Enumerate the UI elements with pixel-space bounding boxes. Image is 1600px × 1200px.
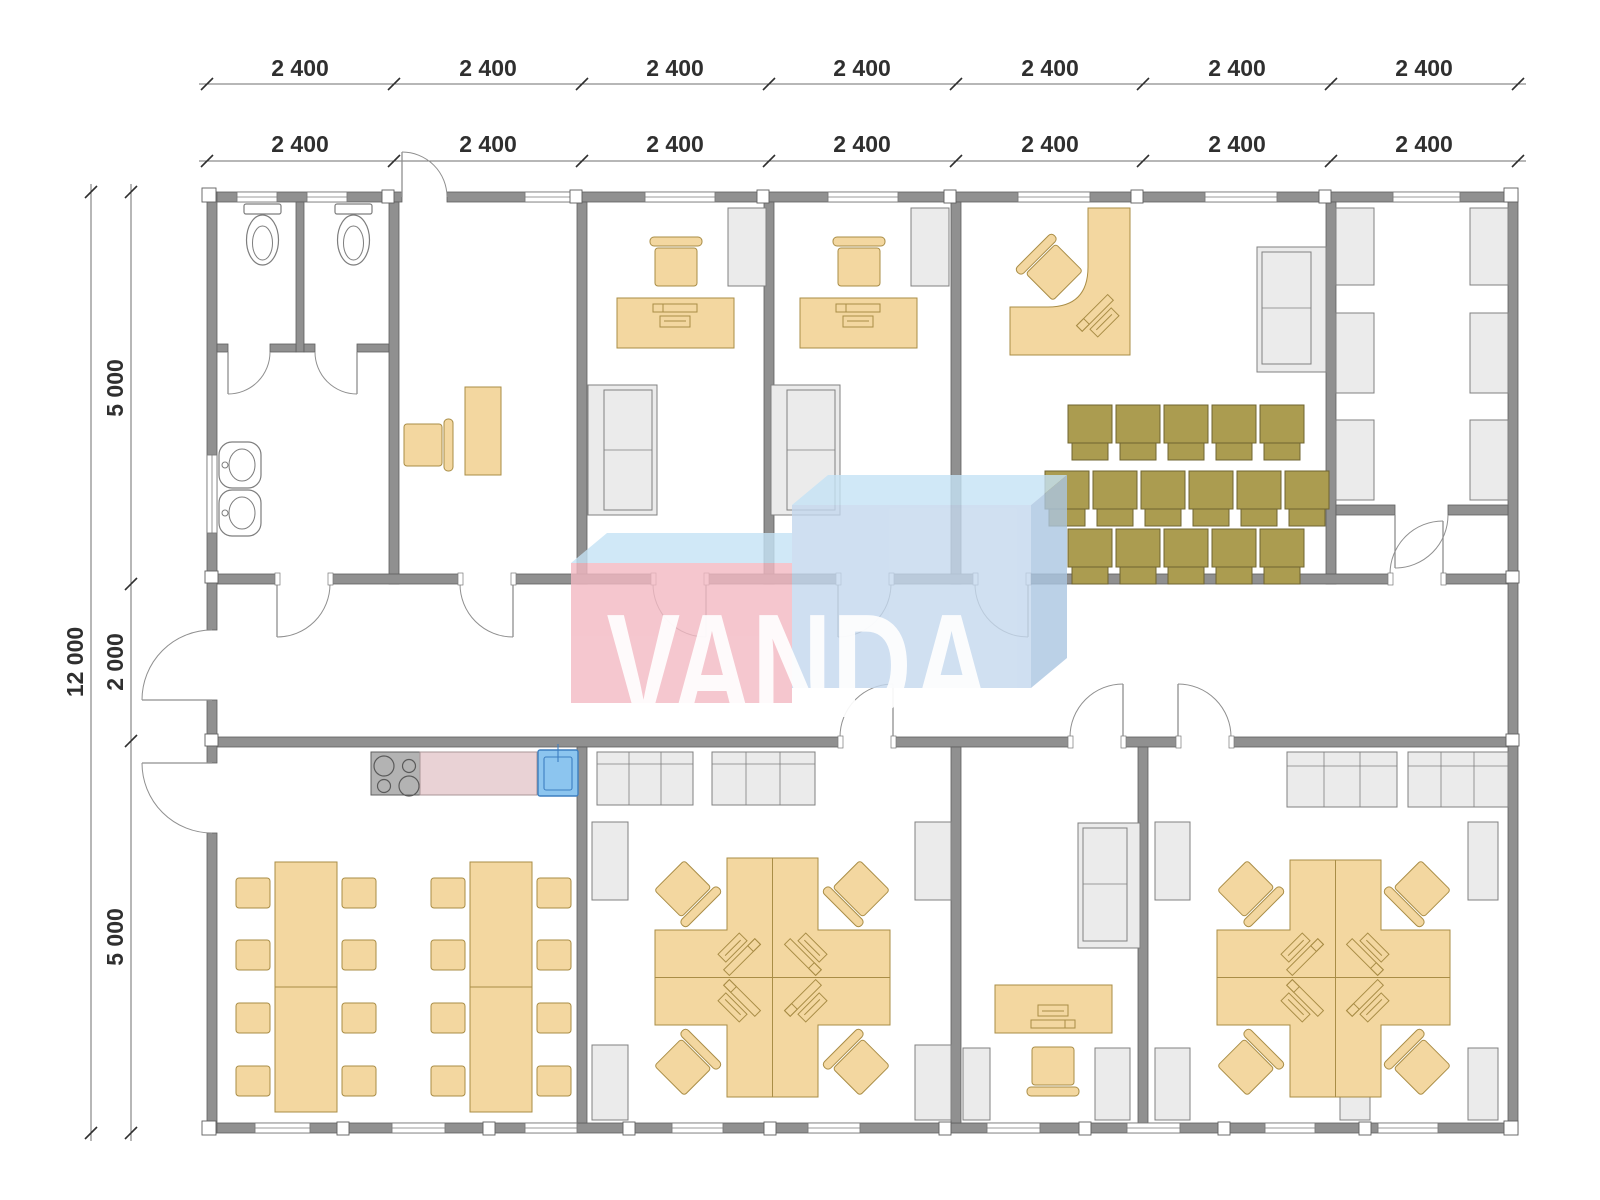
- door-icon: [228, 352, 270, 394]
- door-icon: [402, 152, 447, 197]
- cabinet-icon: [1468, 822, 1498, 900]
- cabinet-icon: [915, 822, 951, 900]
- dim-left-seg2: 2 000: [102, 633, 128, 691]
- window-icon: [307, 192, 347, 202]
- cabinet-icon: [592, 1045, 628, 1120]
- cabinet-icon: [1470, 420, 1508, 500]
- toilet-icon: [335, 204, 372, 265]
- toilet-icon: [244, 204, 281, 265]
- window-icon: [828, 192, 898, 202]
- office-chair-icon: [1214, 857, 1285, 928]
- room-office-2: [771, 208, 949, 515]
- office-chair-icon: [1383, 857, 1454, 928]
- door-icon: [1390, 521, 1443, 574]
- office-desk-icon: [465, 387, 501, 475]
- office-desk-icon: [800, 298, 917, 348]
- dim-left-total: 12 000: [62, 627, 88, 697]
- dim-top1-bay4: 2 400: [833, 55, 891, 81]
- door-icon: [460, 584, 513, 637]
- washbasin-icon: [219, 442, 261, 488]
- sofa-icon: [1078, 823, 1140, 948]
- office-chair-icon: [1383, 1028, 1454, 1099]
- cabinet-icon: [1468, 1048, 1498, 1120]
- sofa-icon: [1257, 247, 1326, 372]
- watermark-logo-text: VANDA: [607, 584, 992, 749]
- training-chairs-row-2: [1045, 471, 1329, 526]
- door-icon: [142, 763, 212, 833]
- office-desk-icon: [617, 298, 734, 348]
- dim-top2-bay7: 2 400: [1395, 131, 1453, 157]
- window-icon: [1393, 192, 1460, 202]
- window-icon: [237, 192, 277, 202]
- dim-top1-bay5: 2 400: [1021, 55, 1079, 81]
- window-icon: [255, 1123, 310, 1133]
- room-open-office-1: [592, 752, 951, 1120]
- door-icon: [277, 584, 330, 637]
- kitchen-sink-icon: [538, 744, 578, 796]
- office-desk-icon: [995, 985, 1112, 1033]
- floor-plan-drawing: 2 400 2 400 2 400 2 400 2 400 2 400 2 40…: [0, 0, 1600, 1200]
- window-icon: [1265, 1123, 1315, 1133]
- cabinet-icon: [1095, 1048, 1130, 1120]
- cabinet-icon: [1336, 313, 1374, 393]
- office-chair-icon: [404, 419, 453, 471]
- dim-top2-bay3: 2 400: [646, 131, 704, 157]
- room-canteen: [236, 744, 578, 1112]
- counter-icon: [1287, 752, 1397, 807]
- kitchen-counter-icon: [420, 752, 537, 795]
- counter-icon: [712, 752, 815, 805]
- window-icon: [1378, 1123, 1438, 1133]
- room-office-1: [588, 208, 766, 515]
- office-chair-icon: [822, 857, 893, 928]
- door-icon: [142, 630, 212, 700]
- cabinet-icon: [592, 822, 628, 900]
- watermark-side-face: [1031, 475, 1067, 688]
- window-icon: [808, 1123, 860, 1133]
- room-reception: [404, 387, 501, 475]
- counter-icon: [1408, 752, 1508, 807]
- office-chair-icon: [833, 237, 885, 286]
- room-manager-office: [963, 823, 1140, 1120]
- dim-top2-bay2: 2 400: [459, 131, 517, 157]
- window-icon: [987, 1123, 1040, 1133]
- dim-top2-bay1: 2 400: [271, 131, 329, 157]
- dim-top1-bay6: 2 400: [1208, 55, 1266, 81]
- window-icon: [1205, 192, 1277, 202]
- window-icon: [1127, 1123, 1180, 1133]
- cabinet-icon: [1155, 1048, 1190, 1120]
- dim-top1-bay1: 2 400: [271, 55, 329, 81]
- room-lockers: [1336, 208, 1508, 500]
- cabinet-icon: [1470, 208, 1508, 285]
- window-icon: [525, 192, 572, 202]
- window-icon: [392, 1123, 445, 1133]
- window-icon: [1018, 192, 1090, 202]
- dim-left-seg3: 5 000: [102, 908, 128, 966]
- dim-left-seg1: 5 000: [102, 359, 128, 417]
- window-icon: [525, 1123, 577, 1133]
- office-chair-icon: [651, 857, 722, 928]
- room-toilets: [219, 204, 372, 536]
- cabinet-icon: [1470, 313, 1508, 393]
- office-chair-icon: [651, 1028, 722, 1099]
- office-chair-icon: [650, 237, 702, 286]
- cabinet-icon: [728, 208, 766, 286]
- dim-top1-bay3: 2 400: [646, 55, 704, 81]
- dining-table-icon: [275, 862, 337, 1112]
- dim-top2-bay4: 2 400: [833, 131, 891, 157]
- door-icon: [1395, 515, 1448, 568]
- office-chair-icon: [822, 1028, 893, 1099]
- dim-top1-bay7: 2 400: [1395, 55, 1453, 81]
- stove-icon: [371, 752, 420, 796]
- watermark-top-face-right: [792, 475, 1067, 505]
- cabinet-icon: [911, 208, 949, 286]
- window-icon: [645, 192, 715, 202]
- office-chair-icon: [1015, 233, 1086, 304]
- dim-top1-bay2: 2 400: [459, 55, 517, 81]
- window-icon: [672, 1123, 723, 1133]
- door-icon: [315, 352, 357, 394]
- door-icon: [1178, 684, 1231, 737]
- dim-top2-bay5: 2 400: [1021, 131, 1079, 157]
- cabinet-icon: [1336, 208, 1374, 285]
- office-chair-icon: [1027, 1047, 1079, 1096]
- window-icon: [207, 455, 217, 533]
- washbasin-icon: [219, 490, 261, 536]
- training-chairs-row-3: [1068, 529, 1304, 584]
- watermark-top-face-left: [571, 533, 828, 563]
- door-icon: [1070, 684, 1123, 737]
- room-open-office-2: [1155, 752, 1508, 1120]
- cabinet-icon: [1155, 822, 1190, 900]
- cabinet-icon: [963, 1048, 990, 1120]
- cabinet-icon: [915, 1045, 951, 1120]
- office-chair-icon: [1214, 1028, 1285, 1099]
- floor-plan-page: 2 400 2 400 2 400 2 400 2 400 2 400 2 40…: [0, 0, 1600, 1200]
- training-chairs-row-1: [1068, 405, 1304, 460]
- dining-table-icon: [470, 862, 532, 1112]
- counter-icon: [597, 752, 693, 805]
- cabinet-icon: [1336, 420, 1374, 500]
- dim-top2-bay6: 2 400: [1208, 131, 1266, 157]
- sofa-icon: [588, 385, 657, 515]
